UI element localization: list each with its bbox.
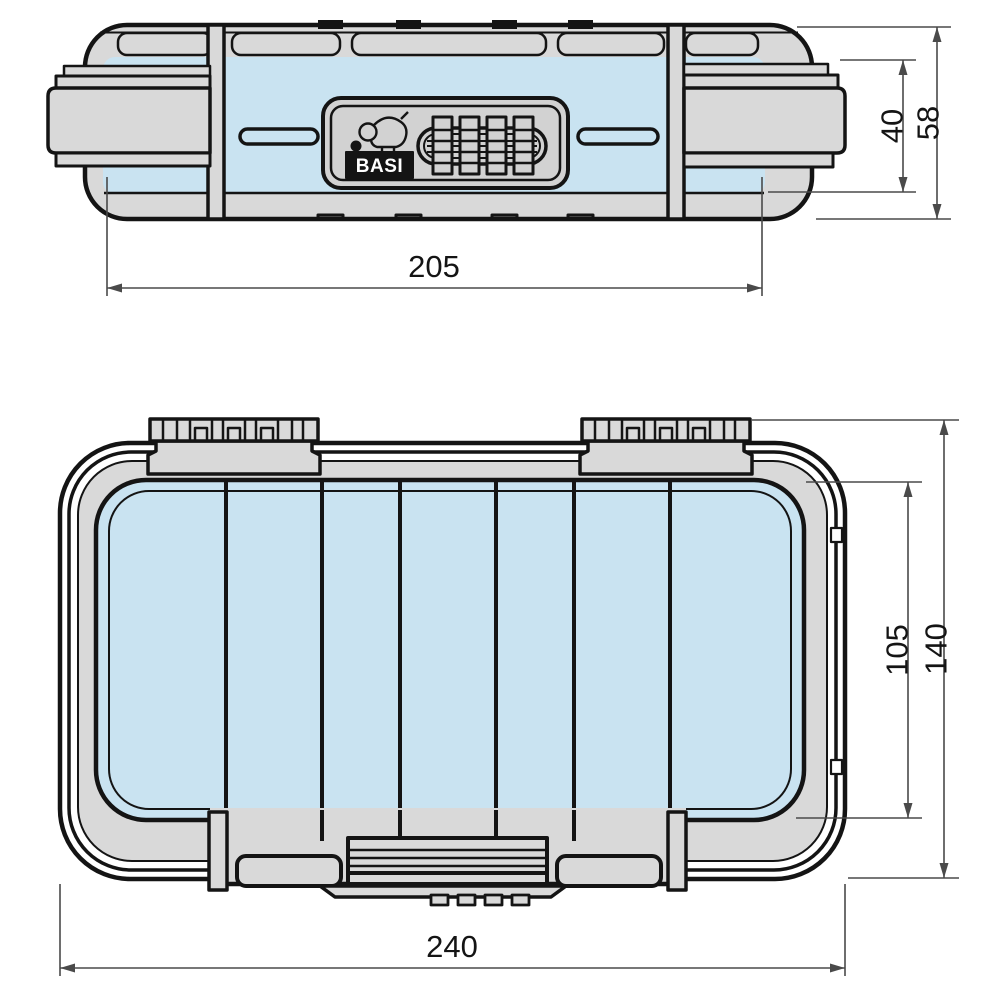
hinge-block-left xyxy=(148,419,320,474)
technical-drawing-page: BASI xyxy=(0,0,1000,1000)
clamp-step xyxy=(684,153,833,167)
lid-recess xyxy=(558,33,664,55)
lock-panel: BASI xyxy=(323,98,568,188)
clamp-step xyxy=(56,153,210,166)
edge-tick xyxy=(831,528,842,542)
latch-post-left xyxy=(209,812,227,890)
latch-post-right xyxy=(668,812,686,890)
latch-slider-block[interactable] xyxy=(348,838,547,884)
dial-wheel-2[interactable] xyxy=(460,117,479,174)
hinge-body xyxy=(580,441,752,474)
front-left-clamp xyxy=(48,66,210,166)
front-right-slot xyxy=(578,129,658,144)
front-width-label: 205 xyxy=(408,249,460,284)
lid-recess xyxy=(686,33,758,55)
latch-recess-right xyxy=(557,856,661,886)
front-right-clamp xyxy=(684,64,845,167)
front-left-slot xyxy=(240,129,318,144)
top-tab xyxy=(492,20,517,29)
drawing-canvas: BASI xyxy=(0,0,1000,1000)
hinge-block-right xyxy=(580,419,752,474)
latch-recess-left xyxy=(237,856,341,886)
brand-label: BASI xyxy=(356,156,403,177)
clamp-step xyxy=(56,76,210,88)
dial-wheel-3[interactable] xyxy=(487,117,506,174)
dial-nub[interactable] xyxy=(458,895,475,905)
clamp-step xyxy=(684,75,838,88)
plan-outer-depth-label: 140 xyxy=(919,623,954,675)
dial-nub[interactable] xyxy=(512,895,529,905)
clamp-main xyxy=(684,88,845,153)
ball-icon xyxy=(351,141,362,152)
plan-inner-depth-label: 105 xyxy=(880,624,915,676)
dial-wheel-4[interactable] xyxy=(514,117,533,174)
lid-recess xyxy=(232,33,340,55)
front-right-band xyxy=(668,25,684,219)
plan-inner-window xyxy=(96,480,804,820)
top-tab xyxy=(318,20,343,29)
dial-wheel-1[interactable] xyxy=(433,117,452,174)
lid-recess xyxy=(118,33,212,55)
front-inner-height-label: 40 xyxy=(875,109,910,143)
edge-tick xyxy=(831,760,842,774)
front-outer-height-label: 58 xyxy=(911,106,946,140)
top-tab xyxy=(396,20,421,29)
hinge-body xyxy=(148,441,320,474)
clamp-main xyxy=(48,88,210,153)
top-tab xyxy=(568,20,593,29)
lid-recess xyxy=(352,33,546,55)
plan-width-label: 240 xyxy=(426,929,478,964)
clamp-ledge xyxy=(684,64,828,75)
dial-nub[interactable] xyxy=(485,895,502,905)
dial-nub[interactable] xyxy=(431,895,448,905)
